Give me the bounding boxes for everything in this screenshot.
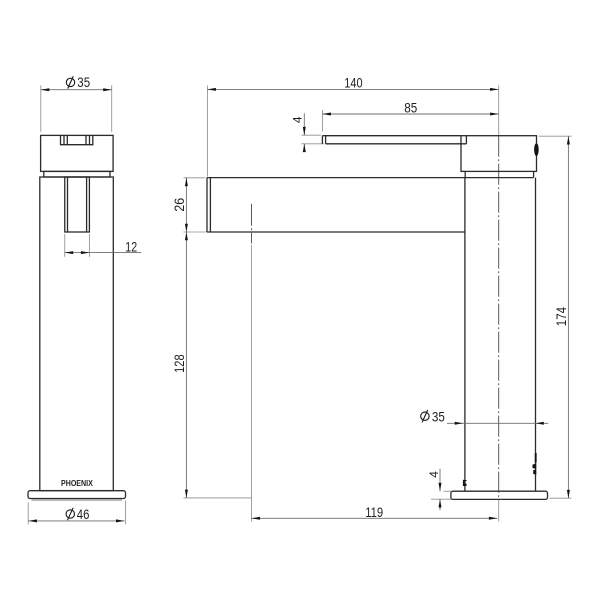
svg-text:12: 12	[125, 238, 137, 254]
svg-text:46: 46	[77, 506, 90, 522]
svg-text:128: 128	[171, 354, 187, 373]
svg-text:140: 140	[344, 75, 362, 91]
svg-text:PHOENIX: PHOENIX	[61, 478, 93, 488]
svg-text:4: 4	[429, 471, 441, 478]
svg-text:4: 4	[293, 116, 305, 123]
svg-text:85: 85	[404, 100, 417, 116]
svg-text:119: 119	[365, 504, 383, 520]
svg-text:35: 35	[432, 408, 445, 424]
svg-text:35: 35	[77, 74, 90, 90]
svg-text:26: 26	[171, 198, 187, 212]
svg-text:174: 174	[553, 307, 569, 326]
